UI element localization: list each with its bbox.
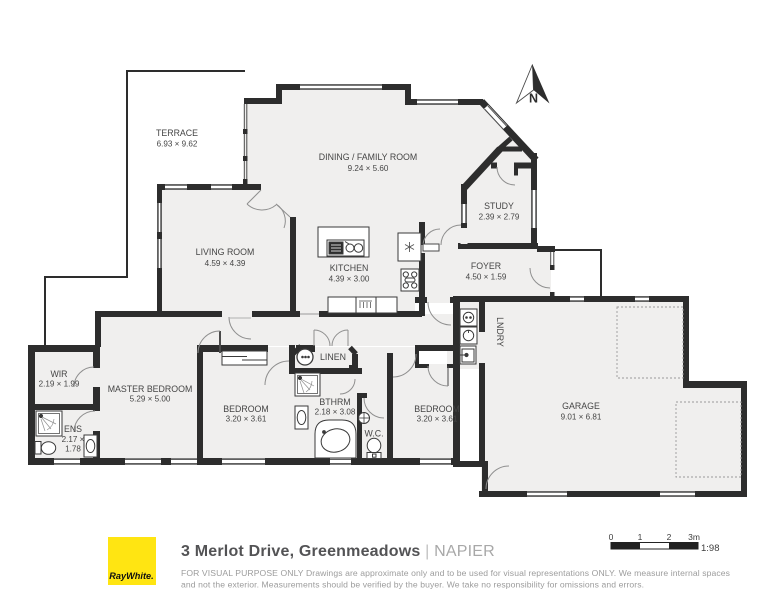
svg-text:and not the exterior. Measurem: and not the exterior. Measurements shoul… <box>181 580 644 590</box>
svg-text:2.19 × 1.99: 2.19 × 1.99 <box>39 380 80 389</box>
svg-text:FOYER: FOYER <box>471 261 501 271</box>
svg-text:4.59 × 4.39: 4.59 × 4.39 <box>205 259 246 268</box>
svg-text:9.24 × 5.60: 9.24 × 5.60 <box>348 164 389 173</box>
svg-text:3m: 3m <box>688 532 700 542</box>
svg-text:LNDRY: LNDRY <box>495 317 505 347</box>
svg-text:LINEN: LINEN <box>320 352 346 362</box>
svg-text:2.39 × 2.79: 2.39 × 2.79 <box>479 213 520 222</box>
svg-text:3 Merlot Drive, Greenmeadows |: 3 Merlot Drive, Greenmeadows | NAPIER <box>181 543 495 560</box>
svg-text:BEDROOM: BEDROOM <box>414 404 459 414</box>
svg-text:1:98: 1:98 <box>701 543 720 554</box>
svg-text:FOR VISUAL PURPOSE ONLY Drawin: FOR VISUAL PURPOSE ONLY Drawings are app… <box>181 568 730 578</box>
svg-text:0: 0 <box>609 532 614 542</box>
svg-text:2.17 ×: 2.17 × <box>62 435 85 444</box>
svg-text:1.78: 1.78 <box>65 445 81 454</box>
svg-text:4.39 × 3.00: 4.39 × 3.00 <box>329 275 370 284</box>
svg-text:1: 1 <box>638 532 643 542</box>
svg-text:BTHRM: BTHRM <box>319 397 350 407</box>
svg-text:DINING / FAMILY ROOM: DINING / FAMILY ROOM <box>319 152 417 162</box>
svg-text:ENS: ENS <box>64 424 82 434</box>
svg-text:5.29 × 5.00: 5.29 × 5.00 <box>130 395 171 404</box>
svg-text:KITCHEN: KITCHEN <box>330 263 369 273</box>
svg-text:BEDROOM: BEDROOM <box>223 404 268 414</box>
svg-text:3.20 × 3.61: 3.20 × 3.61 <box>417 415 458 424</box>
svg-text:2: 2 <box>667 532 672 542</box>
svg-text:N: N <box>529 92 538 106</box>
svg-text:LIVING ROOM: LIVING ROOM <box>196 247 255 257</box>
svg-text:RayWhite.: RayWhite. <box>109 571 153 581</box>
svg-text:W.C.: W.C. <box>364 429 383 439</box>
svg-text:MASTER BEDROOM: MASTER BEDROOM <box>108 384 193 394</box>
svg-text:3.20 × 3.61: 3.20 × 3.61 <box>226 415 267 424</box>
svg-text:4.50 × 1.59: 4.50 × 1.59 <box>466 273 507 282</box>
svg-text:TERRACE: TERRACE <box>156 128 198 138</box>
svg-text:WIR: WIR <box>50 369 67 379</box>
svg-text:6.93 × 9.62: 6.93 × 9.62 <box>157 140 198 149</box>
svg-text:GARAGE: GARAGE <box>562 401 600 411</box>
svg-text:9.01 × 6.81: 9.01 × 6.81 <box>561 413 602 422</box>
svg-text:STUDY: STUDY <box>484 201 514 211</box>
svg-text:2.18 × 3.08: 2.18 × 3.08 <box>315 408 356 417</box>
